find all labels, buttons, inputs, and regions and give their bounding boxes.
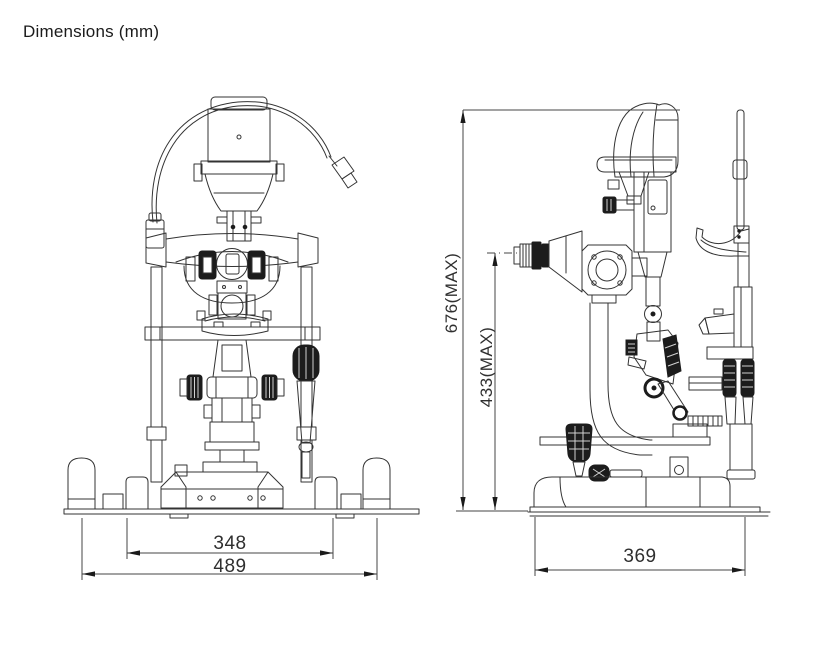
breath-shield-bar bbox=[146, 233, 318, 267]
dim-label-369: 369 bbox=[605, 546, 675, 568]
slide-plate-side bbox=[540, 424, 710, 445]
base-housing-front bbox=[161, 462, 283, 508]
front-view-drawing bbox=[64, 97, 419, 518]
side-view-drawing bbox=[514, 103, 770, 516]
lamp-cover-side bbox=[597, 103, 678, 204]
base-housing-side bbox=[528, 457, 770, 516]
dim-label-676-max: 676(MAX) bbox=[441, 233, 463, 353]
center-column bbox=[180, 340, 284, 462]
lamp-housing bbox=[194, 97, 284, 241]
microscope-side bbox=[514, 231, 647, 303]
joystick-side bbox=[566, 424, 609, 481]
dim-label-348: 348 bbox=[195, 533, 265, 555]
illumination-column-side bbox=[603, 172, 671, 341]
technical-drawing bbox=[0, 0, 833, 665]
dim-label-489: 489 bbox=[195, 556, 265, 578]
table-handles bbox=[68, 458, 390, 509]
curved-support-column bbox=[590, 303, 652, 455]
arm-rail bbox=[145, 322, 320, 340]
tabletop-front bbox=[64, 509, 419, 518]
joystick-front bbox=[293, 345, 319, 478]
dim-label-433-max: 433(MAX) bbox=[476, 307, 498, 427]
page: Dimensions (mm) bbox=[0, 0, 833, 665]
slit-mechanism-side bbox=[626, 330, 722, 426]
